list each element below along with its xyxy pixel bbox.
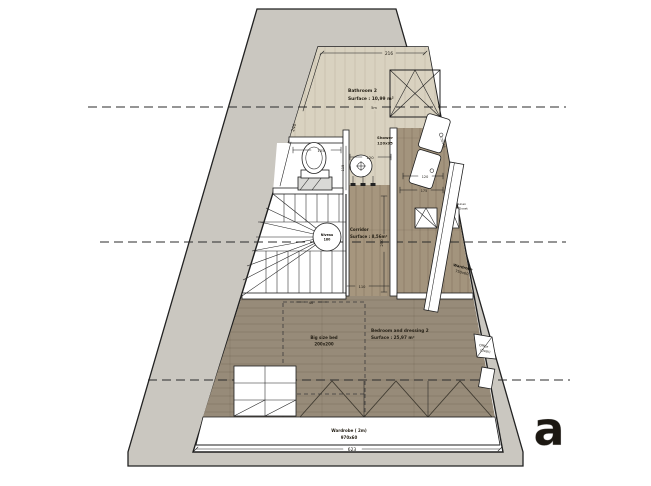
dim-right-a: 120	[422, 175, 428, 179]
dresser	[234, 366, 296, 416]
watermark-letter: a	[533, 402, 564, 456]
corridor-name: Corridor	[350, 227, 369, 232]
bathroom-surface: Surface : 10,99 m²	[348, 96, 394, 102]
bedroom-name: Bedroom and dressing 2	[371, 328, 429, 333]
shower-name: Shower	[377, 135, 393, 140]
floor-plan-canvas: 150x46 Niveau 180	[0, 0, 651, 486]
corridor-surface: Surface : 8,56m²	[350, 234, 388, 239]
watermark: a	[526, 402, 573, 456]
bedroom-surface: Surface : 25,97 m²	[371, 335, 415, 340]
dim-bottom: 623	[348, 447, 357, 453]
bathroom-name: Bathroom 2	[348, 88, 377, 94]
bottom-wardrobe-size: 970x60	[341, 435, 358, 440]
dim-niche-b: 45	[348, 166, 352, 170]
dim-top: 216	[385, 51, 393, 56]
linen-closet-label: Linen Closet	[458, 202, 469, 211]
stair-core-label-1: Niveau	[321, 233, 333, 237]
dim-right-b: 175	[421, 189, 427, 193]
dim-section: 5m	[371, 106, 377, 110]
shower-size: 120x95	[377, 141, 393, 146]
dim-niche: 115	[341, 165, 345, 171]
stair-core-label-2: 180	[324, 238, 331, 242]
closet-label-1: Linen	[458, 202, 466, 206]
bed-label-name: Big size bed	[310, 335, 337, 340]
dim-toilet: 105	[317, 148, 325, 153]
dim-corridor-v: 250	[379, 239, 384, 247]
bed-label-size: 200x200	[314, 342, 333, 347]
dim-shower: 120	[366, 155, 374, 160]
bottom-wardrobe-name: Wardrobe ( 2m)	[331, 428, 367, 433]
closet-label-2: Closet	[458, 207, 468, 211]
dim-opening: 40	[309, 301, 314, 305]
dim-corridor-w: 110	[359, 285, 367, 289]
floor-plan-page: 150x46 Niveau 180	[0, 0, 651, 486]
